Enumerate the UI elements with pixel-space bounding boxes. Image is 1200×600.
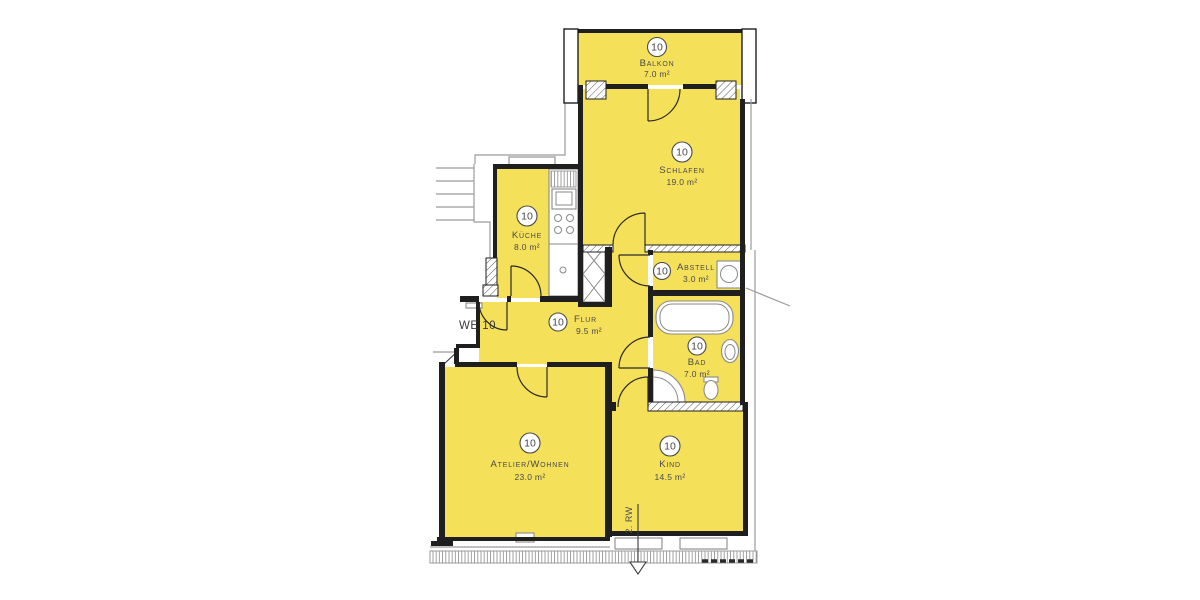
room-area: 3.0 m² bbox=[683, 274, 709, 284]
room-area: 19.0 m² bbox=[667, 177, 698, 187]
wardrobe bbox=[583, 247, 605, 302]
svg-text:10: 10 bbox=[521, 211, 533, 223]
apartment-label: WE 10 bbox=[459, 320, 496, 332]
room-name: Flur bbox=[574, 314, 597, 325]
facade-strip bbox=[430, 551, 757, 563]
room-atelier bbox=[445, 367, 605, 538]
room-name: Balkon bbox=[640, 58, 675, 69]
bathroom-sink bbox=[722, 340, 739, 363]
room-area: 8.0 m² bbox=[514, 242, 540, 252]
svg-text:10: 10 bbox=[691, 341, 703, 353]
room-flur-main bbox=[479, 302, 648, 364]
balcony-pier-left bbox=[564, 29, 578, 103]
label-bad: 10 Bad 7.0 m² bbox=[684, 337, 710, 379]
room-area: 7.0 m² bbox=[684, 369, 710, 379]
room-area: 9.5 m² bbox=[576, 326, 602, 336]
svg-text:10: 10 bbox=[552, 317, 564, 329]
room-name: Atelier/Wohnen bbox=[491, 459, 570, 470]
balcony-pier-right bbox=[742, 29, 756, 103]
room-area: 14.5 m² bbox=[655, 472, 686, 482]
drainer bbox=[551, 171, 576, 187]
washing-machine bbox=[717, 261, 741, 288]
room-name: Kind bbox=[659, 459, 681, 470]
room-area: 7.0 m² bbox=[644, 69, 670, 79]
room-name: Schlafen bbox=[659, 165, 704, 176]
svg-text:10: 10 bbox=[524, 438, 536, 450]
room-name: Küche bbox=[512, 230, 542, 241]
kind-window-right bbox=[680, 538, 727, 549]
floorplan-svg: 2. RW WE 10 10 Balkon 7.0 m² 10 Schlafen… bbox=[0, 0, 1200, 600]
bathtub bbox=[656, 301, 733, 334]
floorplan-canvas: 2. RW WE 10 10 Balkon 7.0 m² 10 Schlafen… bbox=[0, 0, 1200, 600]
stair-steps bbox=[436, 168, 474, 220]
leader-line bbox=[746, 288, 790, 306]
shaft bbox=[509, 157, 555, 165]
svg-text:10: 10 bbox=[676, 147, 688, 159]
toilet bbox=[704, 377, 718, 400]
down-arrow-icon bbox=[630, 562, 646, 574]
room-name: Bad bbox=[688, 357, 706, 368]
stairwell-wall bbox=[474, 164, 490, 258]
svg-text:10: 10 bbox=[664, 441, 676, 453]
building-outline bbox=[475, 28, 565, 164]
room-area: 23.0 m² bbox=[515, 472, 546, 482]
svg-text:10: 10 bbox=[656, 266, 668, 278]
room-name: Abstell bbox=[677, 262, 715, 273]
svg-text:10: 10 bbox=[651, 42, 663, 54]
escape-route-label: 2. RW bbox=[624, 506, 634, 533]
kitchen-counter bbox=[549, 169, 578, 296]
